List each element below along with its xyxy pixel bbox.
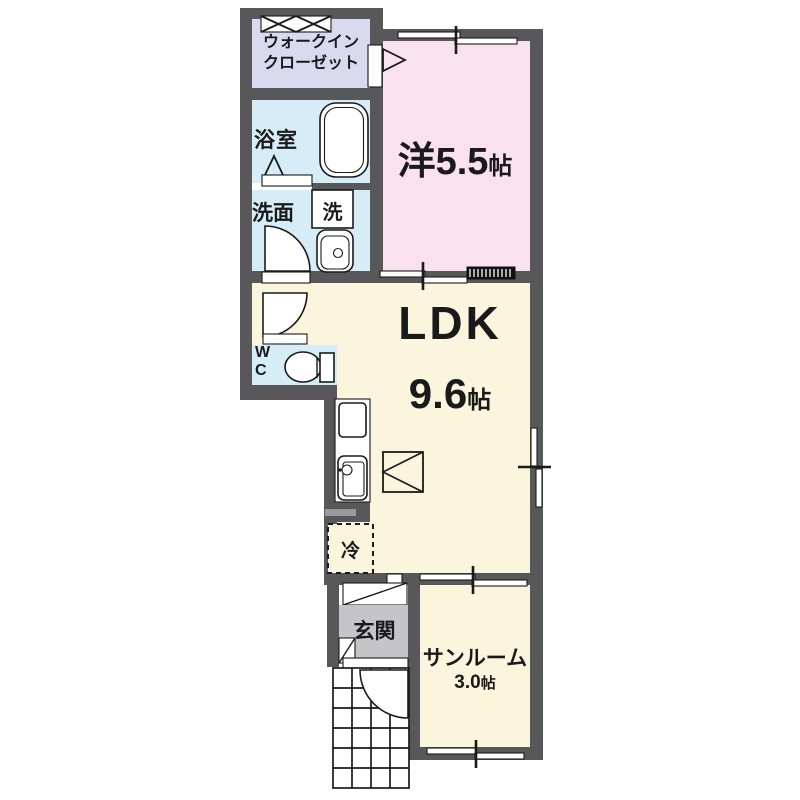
- room-label-western: 洋5.5帖: [370, 130, 540, 185]
- hatched-panel-icon: [467, 267, 515, 279]
- room-label-wc: W C: [255, 344, 270, 380]
- washbasin-icon: [317, 230, 353, 272]
- floorplan-canvas: ウォークイン クローゼット 浴室 洗面 洗 洋5.5帖 LDK 9.6帖 W C…: [0, 0, 800, 800]
- room-label-walk-in-closet: ウォークイン クローゼット: [252, 32, 370, 74]
- washroom-threshold: [262, 272, 310, 283]
- counter-table-icon: [383, 452, 423, 492]
- room-label-bathroom: 浴室: [254, 124, 298, 154]
- room-label-sunroom: サンルーム: [415, 642, 535, 672]
- room-label-washroom: 洗面: [252, 197, 294, 227]
- room-size-ldk: 9.6帖: [350, 370, 550, 418]
- toilet-icon: [285, 352, 334, 382]
- kitchen-sink-icon: [338, 456, 367, 500]
- lattice-window-icon: [261, 16, 331, 32]
- room-label-ldk: LDK: [350, 296, 550, 350]
- vent-mark: [325, 509, 356, 516]
- washer-label: 洗: [312, 196, 353, 225]
- room-label-entrance: 玄関: [341, 615, 408, 645]
- refrigerator-label: 冷: [328, 536, 373, 563]
- shoe-cabinet-icon: [343, 583, 407, 605]
- wc-threshold: [263, 334, 307, 344]
- bathtub-icon: [320, 103, 368, 177]
- room-size-sunroom: 3.0帖: [415, 672, 535, 694]
